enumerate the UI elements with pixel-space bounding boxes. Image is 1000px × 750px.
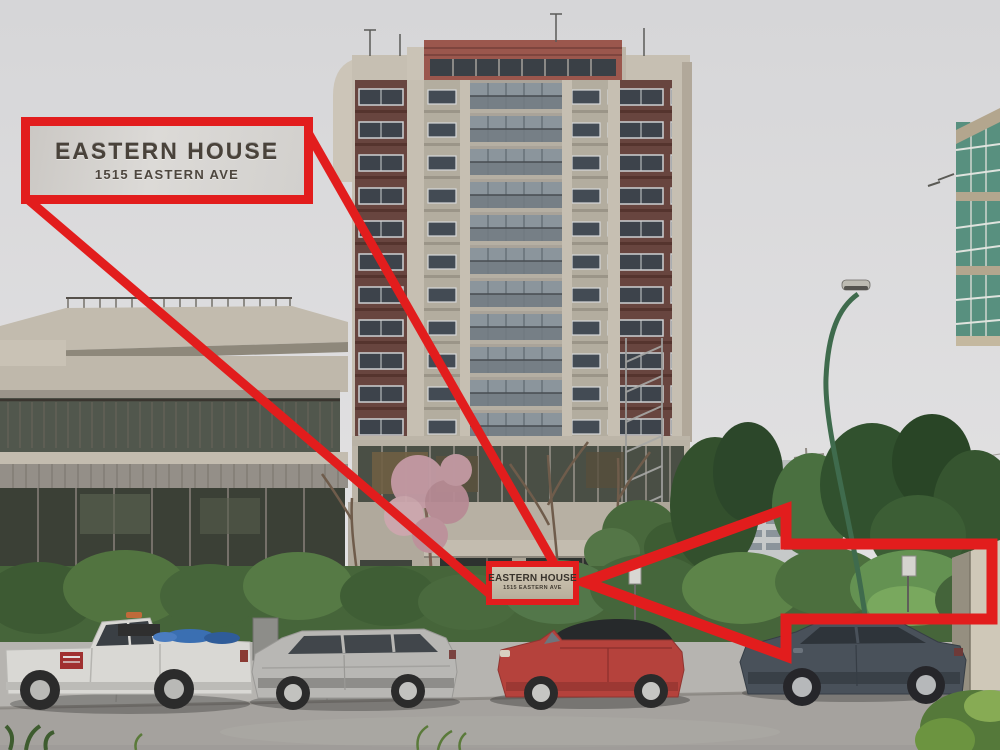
annotated-building-photo: 1515 [0, 0, 1000, 750]
callout-subtitle: 1515 EASTERN AVE [95, 167, 239, 182]
callout-title: EASTERN HOUSE [55, 139, 279, 164]
building-sign-title: EASTERN HOUSE [488, 574, 577, 584]
callout-box: EASTERN HOUSE 1515 EASTERN AVE [21, 117, 313, 204]
building-sign: EASTERN HOUSE 1515 EASTERN AVE [486, 561, 579, 605]
podium-building [0, 298, 348, 588]
photo-scene: 1515 [0, 0, 1000, 750]
building-sign-subtitle: 1515 EASTERN AVE [503, 586, 562, 592]
station-wagon [250, 629, 460, 711]
apartment-tower [333, 14, 692, 544]
